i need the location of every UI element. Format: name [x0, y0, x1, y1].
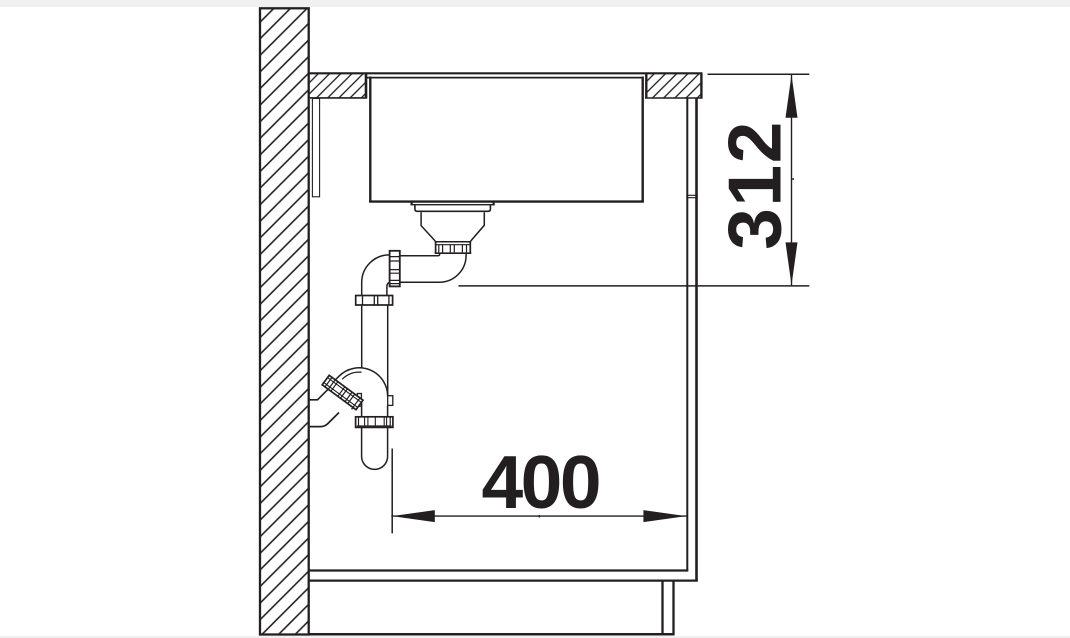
- svg-text:312: 312: [713, 120, 797, 250]
- svg-text:400: 400: [481, 440, 599, 524]
